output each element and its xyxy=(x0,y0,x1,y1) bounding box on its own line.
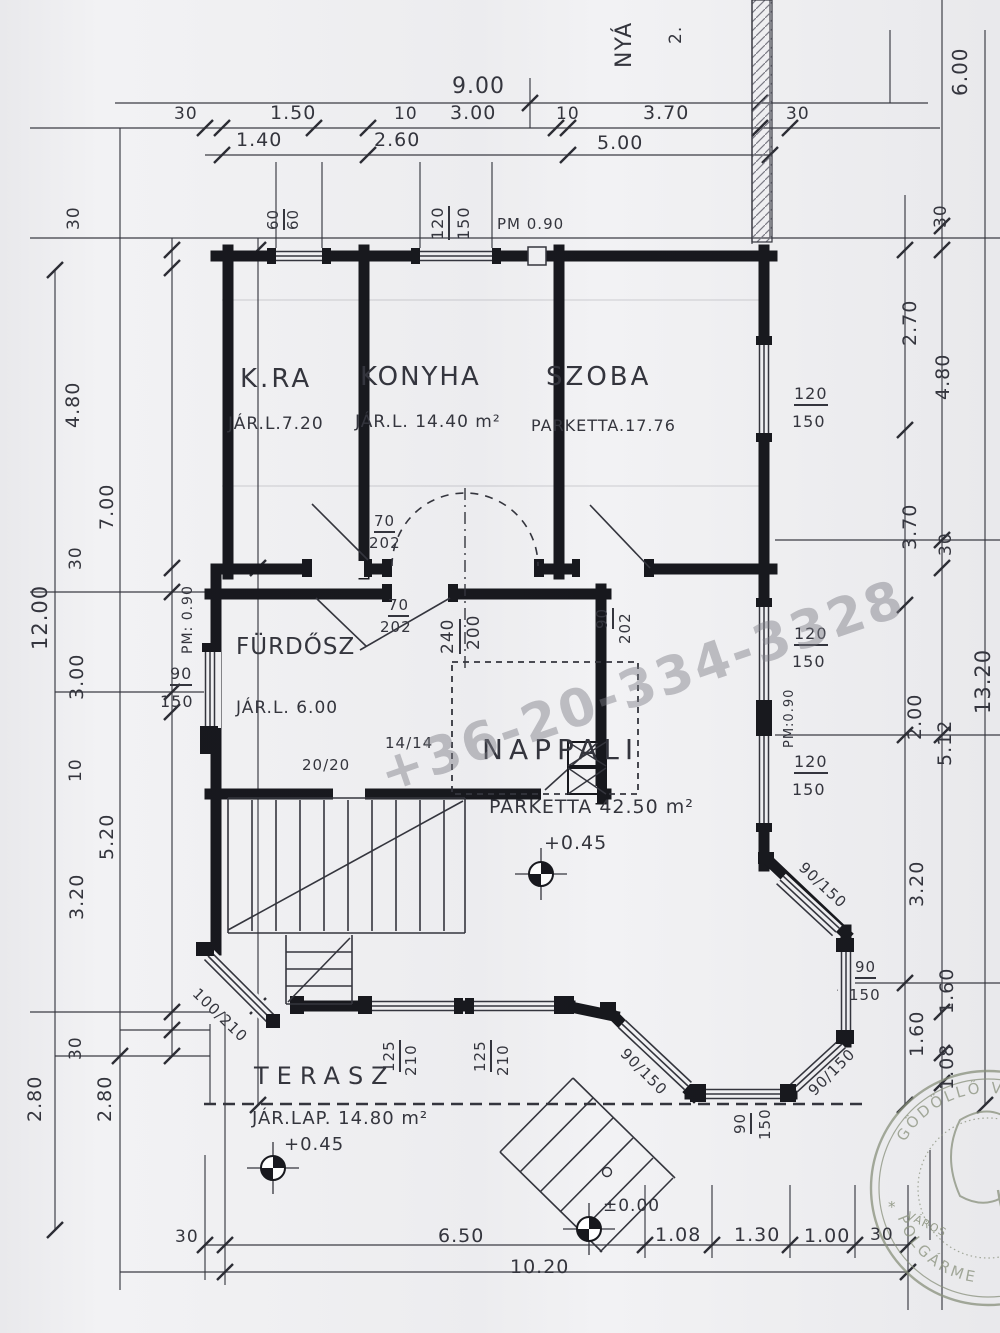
dim-3-20-l: 3.20 xyxy=(68,874,87,920)
stamp-star: * xyxy=(888,1200,897,1215)
dim-1-08-r: 1.08 xyxy=(938,1044,957,1090)
dim-1-40: 1.40 xyxy=(236,131,282,150)
door-70-202-a-den: 202 xyxy=(369,536,401,551)
room-furdosz: FÜRDŐSZ xyxy=(236,636,355,659)
dim-5-00: 5.00 xyxy=(597,134,643,153)
door-90-202-den: 202 xyxy=(618,612,633,644)
win-150-r2-den: 150 xyxy=(792,782,826,798)
win-150-szoba-den: 150 xyxy=(792,414,826,430)
pm-090-top: PM 0.90 xyxy=(497,217,564,232)
room-konyha: KONYHA xyxy=(360,364,481,390)
dim-30-l2: 30 xyxy=(68,546,85,570)
win-150-t-den: 150 xyxy=(456,206,472,240)
win-125-a-num: 125 xyxy=(382,1040,401,1072)
dim-13-20: 13.20 xyxy=(973,649,994,714)
plan-labels-layer: 9.00301.50103.00103.70301.402.605.00PM 0… xyxy=(0,0,1000,1333)
stamp-inner-text: VÁROS xyxy=(905,1210,948,1239)
dim-30-r2: 30 xyxy=(938,532,955,556)
win-125-b-den: 210 xyxy=(496,1044,511,1076)
dim-5-12-r: 5.12 xyxy=(936,720,955,766)
dim-2-00-r: 2.00 xyxy=(906,694,925,740)
side-note-nya: NYÁ xyxy=(614,22,636,68)
dim-10-a: 10 xyxy=(394,106,418,123)
side-note-2: 2. xyxy=(668,26,685,44)
room-nappali-info: PARKETTA 42.50 m² xyxy=(489,798,694,817)
dim-3-20-r: 3.20 xyxy=(908,861,927,907)
win-120-t-num: 120 xyxy=(430,206,450,240)
room-furdosz-info: JÁR.L. 6.00 xyxy=(236,700,338,717)
bay-sw-90-150: 90/150 xyxy=(617,1046,669,1098)
win-60-den: 60 xyxy=(286,209,301,230)
dim-6-00-r: 6.00 xyxy=(950,47,970,96)
dim-6-50: 6.50 xyxy=(438,1227,484,1246)
dim-3-70-r: 3.70 xyxy=(901,504,920,550)
level-terasz: +0.45 xyxy=(284,1136,344,1154)
dim-30-tl: 30 xyxy=(174,106,198,123)
dim-3-00-t: 3.00 xyxy=(450,104,496,123)
win-60-num: 60 xyxy=(266,209,285,230)
door-70-202-a-num: 70 xyxy=(374,514,395,533)
dim-1-08-b: 1.08 xyxy=(655,1226,701,1245)
dim-2-80-la: 2.80 xyxy=(26,1076,45,1122)
win-150-left-den: 150 xyxy=(160,694,194,710)
level-nappali: +0.45 xyxy=(544,834,607,853)
dim-1-50: 1.50 xyxy=(270,104,316,123)
dim-10-20: 10.20 xyxy=(510,1258,569,1277)
open-200-den: 200 xyxy=(466,615,483,650)
win-90-left-num: 90 xyxy=(170,666,192,686)
dim-4-80-r: 4.80 xyxy=(934,354,953,400)
dim-2-80-lb: 2.80 xyxy=(96,1076,115,1122)
dim-5-20-l: 5.20 xyxy=(98,814,117,860)
win-125-b-num: 125 xyxy=(473,1040,492,1072)
door-70-202-b-num: 70 xyxy=(388,598,409,617)
dim-12-00: 12.00 xyxy=(30,585,51,650)
dim-30-l1: 30 xyxy=(66,206,83,230)
pm-090-right: PM:0.90 xyxy=(783,689,796,748)
note-20-20: 20/20 xyxy=(302,758,350,773)
dim-total-9-00: 9.00 xyxy=(452,76,505,98)
dim-3-00-l: 3.00 xyxy=(68,654,87,700)
win-120-r2-num: 120 xyxy=(794,754,828,774)
dim-1-30-b: 1.30 xyxy=(734,1226,780,1245)
dim-2-60: 2.60 xyxy=(374,131,420,150)
dim-1-60-rb: 1.60 xyxy=(908,1011,927,1057)
dim-30-l3: 30 xyxy=(68,1036,85,1060)
win-125-a-den: 210 xyxy=(404,1044,419,1076)
door-100-210: 100/210 xyxy=(190,986,250,1045)
pm-090-left: PM: 0.90 xyxy=(181,585,195,654)
dim-1-60-ra: 1.60 xyxy=(938,968,957,1014)
dim-4-80-l: 4.80 xyxy=(64,382,83,428)
room-kra: K.RA xyxy=(240,366,312,392)
bay-s-90-num: 90 xyxy=(733,1113,752,1134)
room-konyha-info: JÁR.L. 14.40 m² xyxy=(355,414,501,431)
dim-30-r1: 30 xyxy=(933,204,950,228)
bay-e-150-den: 150 xyxy=(849,988,881,1003)
room-szoba-info: PARKETTA.17.76 xyxy=(531,418,676,434)
dim-3-70-t: 3.70 xyxy=(643,104,689,123)
win-120-szoba-num: 120 xyxy=(794,386,828,406)
door-70-202-b-den: 202 xyxy=(380,620,412,635)
bay-ne-90-150: 90/150 xyxy=(796,860,849,911)
dim-30-tr: 30 xyxy=(786,106,810,123)
open-240-num: 240 xyxy=(440,619,461,654)
dim-2-70-r: 2.70 xyxy=(901,300,920,346)
dim-30-ba: 30 xyxy=(175,1229,199,1246)
dim-1-00-b: 1.00 xyxy=(804,1227,850,1246)
floor-plan-page: GÖDÖLLŐ VPOLGÁRME 9.00301.50103.00103.70… xyxy=(0,0,1000,1333)
dim-10-l: 10 xyxy=(68,758,85,782)
dim-7-00-l: 7.00 xyxy=(98,484,117,530)
room-kra-info: JÁR.L.7.20 xyxy=(228,416,324,433)
room-terasz: TERASZ xyxy=(254,1064,396,1088)
room-terasz-info: JÁR.LAP. 14.80 m² xyxy=(252,1110,428,1128)
dim-30-bb: 30 xyxy=(870,1227,894,1244)
door-90-202-num: 90 xyxy=(595,608,614,629)
bay-s-150-den: 150 xyxy=(758,1108,773,1140)
dim-10-b: 10 xyxy=(556,106,580,123)
bay-e-90-num: 90 xyxy=(855,960,876,979)
bay-se-90-150: 90/150 xyxy=(806,1046,858,1098)
level-ground: ±0.00 xyxy=(603,1198,660,1215)
room-szoba: SZOBA xyxy=(546,364,651,390)
